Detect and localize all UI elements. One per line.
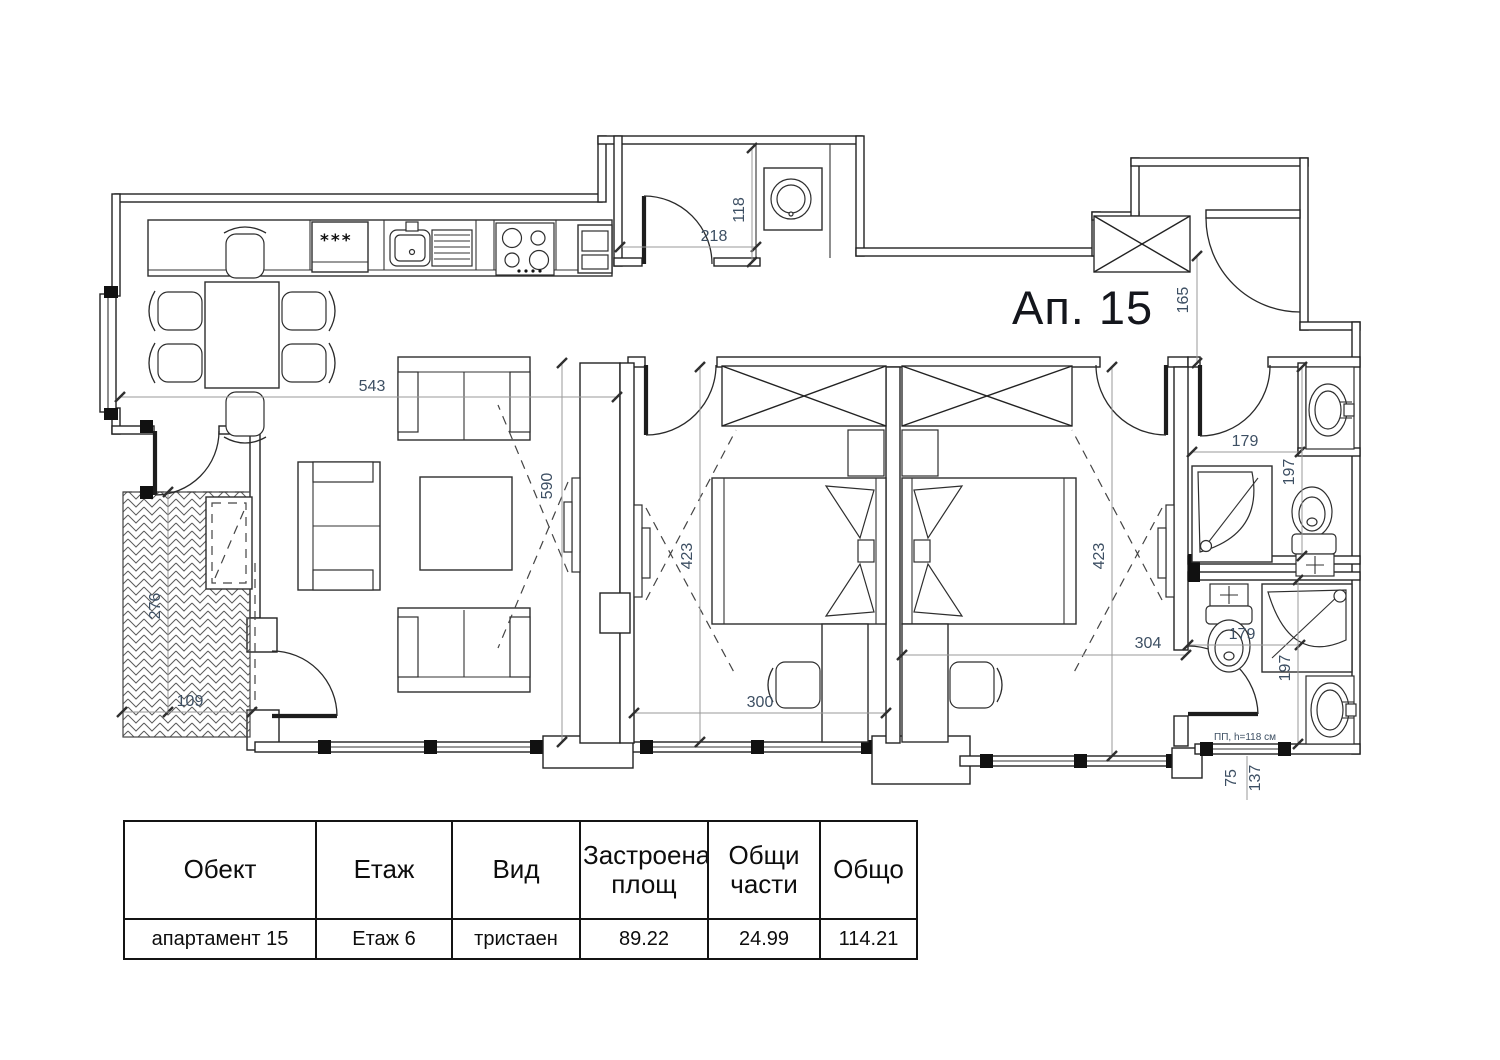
svg-text:197: 197 [1281,459,1298,486]
kitchen-counter: *** [148,220,612,276]
toilet1-icon [1292,487,1336,576]
svg-text:137: 137 [1247,765,1264,792]
svg-text:300: 300 [747,694,774,711]
area-table-container: Обект Етаж Вид Застроена площ Общи части… [123,820,918,960]
parapet-note: ПП, h=118 см [1214,732,1276,743]
sink2-icon [1306,676,1356,744]
bathroom-2 [1188,584,1356,744]
dining-chair [149,291,202,331]
ac-unit-icon [206,497,252,589]
svg-text:75: 75 [1223,769,1240,787]
svg-text:423: 423 [679,543,696,570]
dim-179-bath1: 179 [1187,433,1305,457]
svg-text:179: 179 [1229,626,1256,643]
svg-text:118: 118 [731,197,748,223]
balcony-door-top-icon [140,420,219,499]
desk-chair1 [768,662,820,708]
wardrobe1-icon [722,366,886,426]
bedroom2-door-icon [1096,365,1166,435]
bathroom1-door-icon [1200,365,1270,436]
dining-chair [282,343,335,383]
coffee-table [420,477,512,570]
sink1-icon [1306,367,1354,449]
dim-218: 218 [615,228,761,252]
bedroom-2 [902,365,1174,742]
loveseat-top [398,357,530,440]
window-marker: ПП, h=118 см 75 137 Пр. [1214,732,1276,800]
cell-common-parts: 24.99 [708,919,820,959]
dim-423-bedroom2: 423 [1091,362,1117,761]
stove-icon [496,223,554,275]
svg-text:304: 304 [1135,635,1162,652]
svg-text:218: 218 [701,228,728,245]
bed1-icon [712,478,886,624]
sofa-left [298,462,380,590]
shower1-icon [1192,466,1272,562]
cell-built-area: 89.22 [580,919,708,959]
nightstand2 [902,430,938,476]
area-table: Обект Етаж Вид Застроена площ Общи части… [123,820,918,960]
living-room-furniture [298,357,580,692]
desk-chair2 [950,662,1002,708]
col-header-floor: Етаж [316,821,452,919]
svg-text:109: 109 [177,693,204,710]
bedroom-1 [634,365,886,742]
fridge-icon: *** [312,222,368,272]
svg-text:197: 197 [1277,655,1294,682]
kitchen-cabinet-icon [578,225,612,273]
shaft-icon [1094,216,1190,272]
col-header-total: Общо [820,821,917,919]
svg-text:276: 276 [147,593,164,620]
svg-text:179: 179 [1232,433,1259,450]
cell-type: тристаен [452,919,580,959]
cell-floor: Етаж 6 [316,919,452,959]
apartment-title: Ап. 15 [1012,281,1153,334]
nightstand1 [848,430,884,476]
dining-chair [149,343,202,383]
floor-plan-drawing: *** [0,0,1500,800]
table-row: апартамент 15 Етаж 6 тристаен 89.22 24.9… [124,919,917,959]
col-header-type: Вид [452,821,580,919]
cell-total: 114.21 [820,919,917,959]
wardrobe2-icon [902,366,1072,426]
fridge-freezer-stars: *** [320,231,353,251]
bed2-icon [902,478,1076,624]
svg-text:423: 423 [1091,543,1108,570]
svg-text:590: 590 [539,473,556,500]
bedroom1-door-icon [646,365,716,435]
cell-object: апартамент 15 [124,919,316,959]
dim-423-bedroom1: 423 [679,362,705,747]
washing-machine-icon [764,168,822,230]
dining-chair [282,291,335,331]
floor-plan-page: *** [0,0,1500,1060]
table-header-row: Обект Етаж Вид Застроена площ Общи части… [124,821,917,919]
shower2-icon [1262,584,1352,672]
svg-text:165: 165 [1175,287,1192,314]
col-header-built-area: Застроена площ [580,821,708,919]
desk2 [902,624,948,742]
balcony-door-bottom-icon [272,651,337,716]
svg-text:543: 543 [359,378,386,395]
col-header-object: Обект [124,821,316,919]
bathroom-1 [1192,365,1354,576]
desk1 [822,624,868,742]
col-header-common-parts: Общи части [708,821,820,919]
entrance-door-icon [1206,210,1300,312]
dim-590: 590 [539,358,567,747]
